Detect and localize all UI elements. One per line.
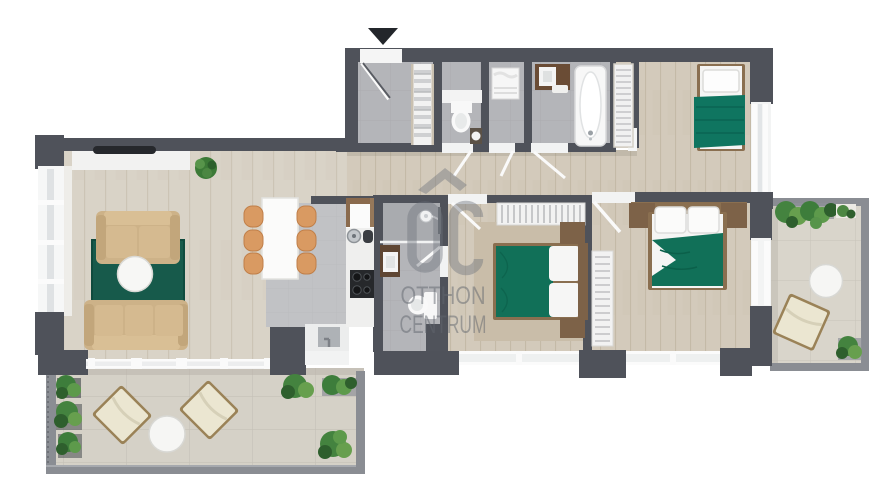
svg-text:OTTHON: OTTHON: [401, 282, 486, 310]
svg-text:CENTRUM: CENTRUM: [400, 311, 487, 339]
